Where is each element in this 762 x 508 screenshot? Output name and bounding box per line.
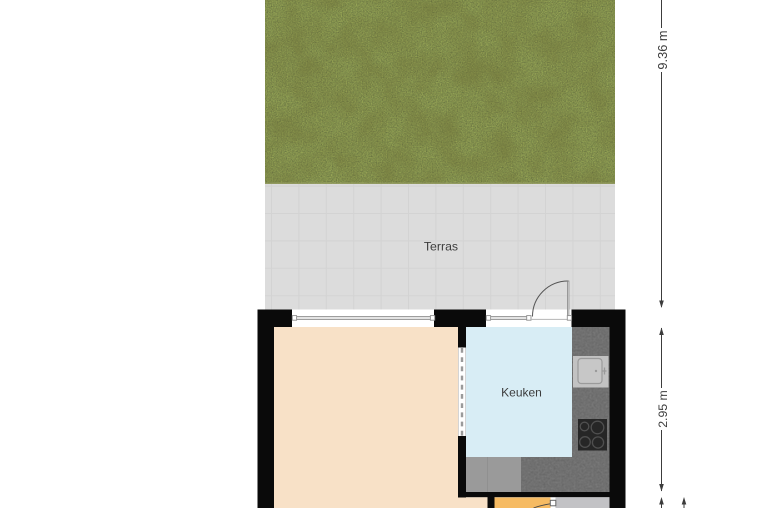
svg-text:2.95 m: 2.95 m <box>656 390 670 428</box>
svg-text:Keuken: Keuken <box>501 386 542 400</box>
svg-text:9.36 m: 9.36 m <box>655 30 670 69</box>
svg-text:Terras: Terras <box>424 240 458 254</box>
